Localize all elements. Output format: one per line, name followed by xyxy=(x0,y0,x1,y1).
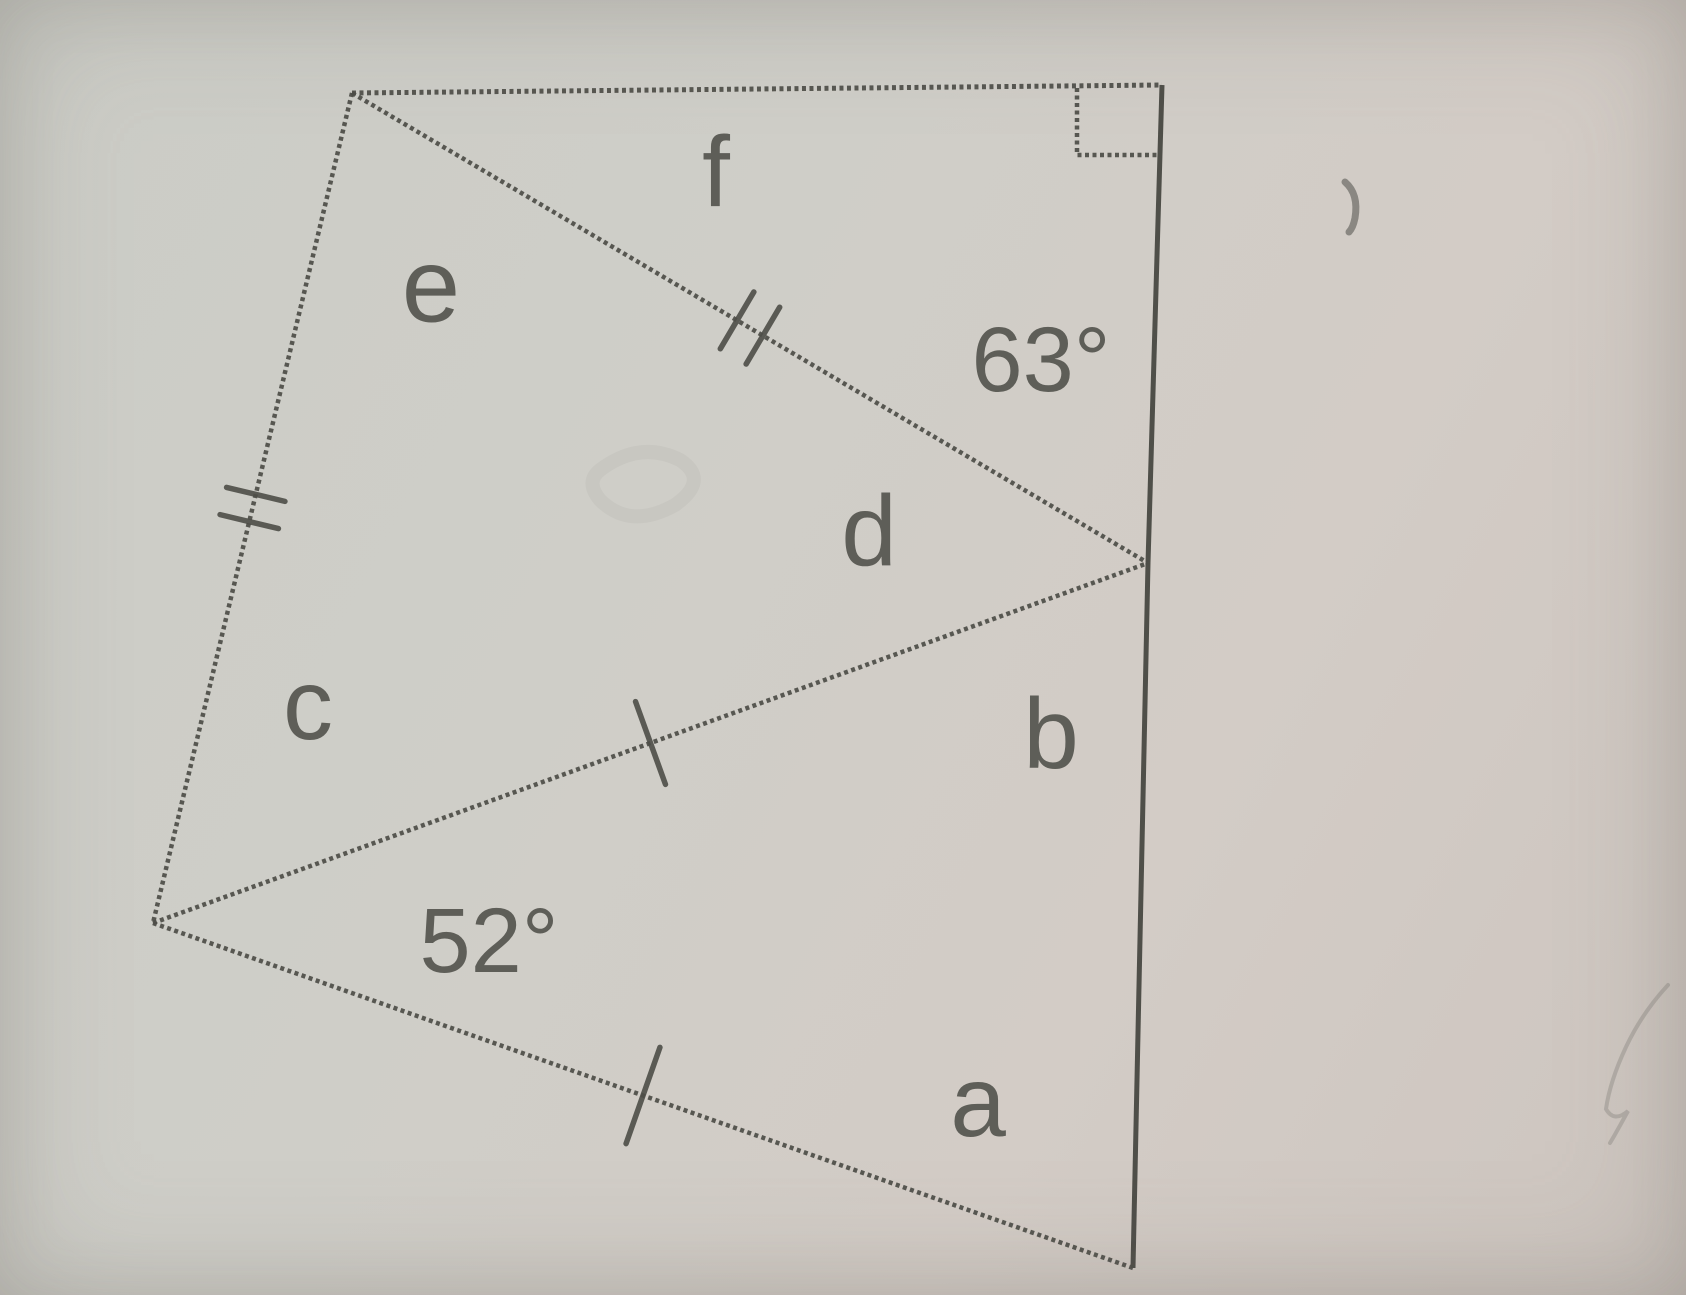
geometry-diagram: fe63°dcb52°a xyxy=(0,0,1686,1295)
angle-label-f: f xyxy=(702,116,730,228)
angle-label-c: c xyxy=(283,649,333,761)
pencil-smudge-top-right xyxy=(1345,182,1356,232)
right-angle-marker xyxy=(1077,88,1160,155)
photographed-worksheet: fe63°dcb52°a xyxy=(0,0,1686,1295)
angle-value-52: 52° xyxy=(419,890,558,992)
diagonal-f-tick-mark xyxy=(720,292,754,349)
angle-label-d: d xyxy=(841,475,897,587)
angle-label-b: b xyxy=(1023,678,1079,790)
angle-value-63: 63° xyxy=(971,309,1110,411)
angle-label-e: e xyxy=(402,228,460,345)
angle-label-a: a xyxy=(950,1046,1006,1158)
top-edge xyxy=(352,85,1162,93)
left-edge xyxy=(153,93,352,923)
right-edge-lower xyxy=(1133,563,1148,1268)
diagonal-f-tick-mark xyxy=(746,307,780,364)
pencil-smudge-right-side xyxy=(1606,985,1668,1143)
bleed-through-ghost xyxy=(593,452,694,516)
diagonal-middle-tick-mark xyxy=(636,702,666,785)
bottom-edge-tick-mark xyxy=(626,1047,660,1143)
